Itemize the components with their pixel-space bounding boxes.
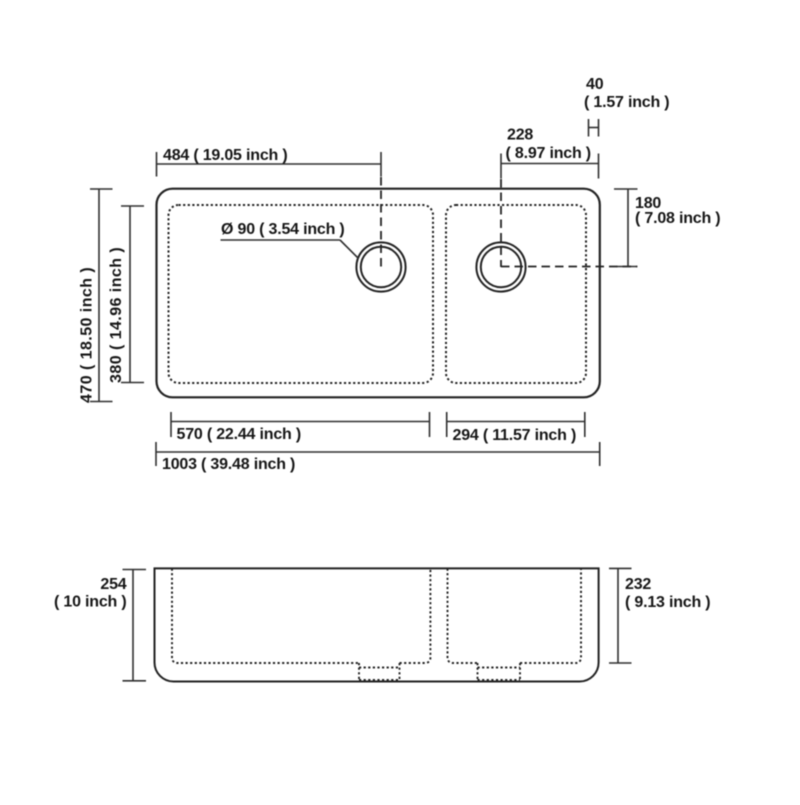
svg-text:( 8.97 inch ): ( 8.97 inch ) [506,145,591,162]
svg-text:( 10 inch ): ( 10 inch ) [54,594,126,611]
svg-text:570 ( 22.44 inch ): 570 ( 22.44 inch ) [177,426,301,443]
svg-text:( 9.13 inch ): ( 9.13 inch ) [625,594,710,611]
svg-text:Ø 90 ( 3.54 inch ): Ø 90 ( 3.54 inch ) [221,221,345,238]
svg-text:( 7.08 inch ): ( 7.08 inch ) [635,210,720,227]
svg-text:254: 254 [100,576,126,593]
svg-text:228: 228 [507,127,533,144]
svg-text:294 ( 11.57 inch ): 294 ( 11.57 inch ) [453,427,577,444]
svg-text:1003 ( 39.48 inch ): 1003 ( 39.48 inch ) [162,456,295,473]
svg-text:232: 232 [625,576,651,593]
svg-text:40: 40 [586,76,604,93]
svg-text:484 ( 19.05 inch ): 484 ( 19.05 inch ) [163,147,287,164]
svg-text:470 ( 18.50 inch ): 470 ( 18.50 inch ) [79,267,96,403]
svg-text:380 ( 14.96 inch ): 380 ( 14.96 inch ) [108,247,125,383]
svg-text:( 1.57 inch ): ( 1.57 inch ) [584,94,669,111]
